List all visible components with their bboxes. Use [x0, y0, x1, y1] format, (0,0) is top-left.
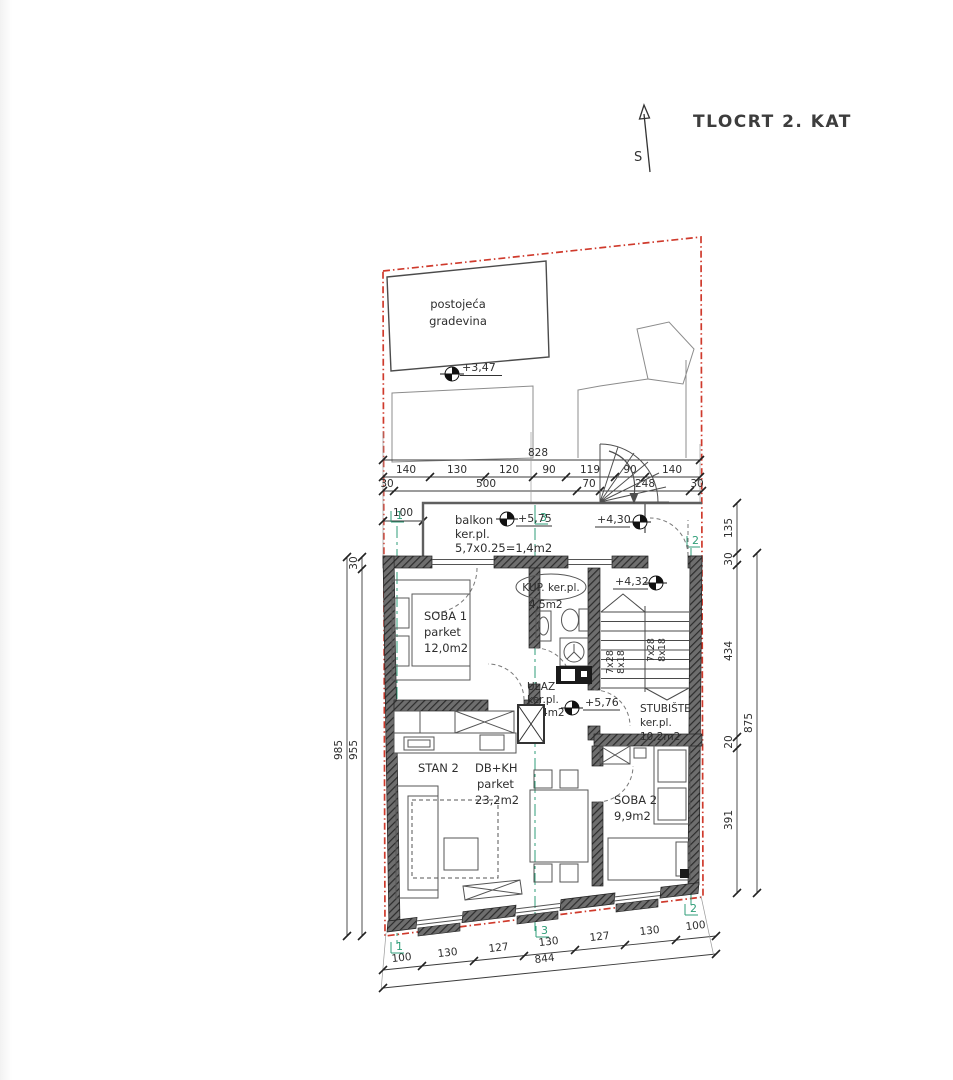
- dim-top: 70: [582, 478, 595, 490]
- stan2-label-1: STAN 2: [418, 761, 459, 775]
- dim-right: 30: [723, 552, 735, 565]
- elevation-marker-icon: [496, 512, 518, 526]
- dim-bottom: 127: [488, 941, 509, 955]
- stair-run-label: 7x28: [646, 638, 657, 662]
- dim-top: 130: [447, 464, 467, 476]
- dim-top: 90: [542, 464, 555, 476]
- balcony-label-1: balkon: [455, 513, 493, 527]
- elevation-marker-icon: [629, 515, 651, 529]
- dim-left: 955: [348, 740, 360, 760]
- dim-top: 140: [662, 464, 682, 476]
- dim-left-total: 985: [333, 740, 345, 760]
- dimensions-top: 828 140 130 120 90 119 90 140 30 500 70 …: [379, 432, 706, 556]
- dining-set: [530, 770, 588, 882]
- dim-bottom: 100: [685, 919, 706, 933]
- stairwell: 7x28 8x18 7x28 8x18 +4,32 STUBIŠTE ker.p…: [601, 575, 691, 743]
- stove: [480, 735, 504, 750]
- chair: [534, 864, 552, 882]
- rug: [412, 800, 498, 878]
- shelf: [634, 748, 646, 758]
- page-title: TLOCRT 2. KAT: [693, 112, 852, 132]
- dim-right: 434: [723, 641, 735, 661]
- dim-bottom: 127: [589, 930, 610, 944]
- soba2-label-2: 9,9m2: [614, 809, 651, 823]
- dim-right: 391: [723, 810, 735, 830]
- landing-elevation: +4,30: [597, 513, 631, 526]
- kup-label-1: KUP. ker.pl.: [522, 582, 579, 594]
- chair: [560, 770, 578, 788]
- balcony: balkon ker.pl. 5,7x0.25=1,4m2 +5,75: [423, 503, 702, 556]
- wardrobe: [654, 746, 690, 824]
- soba1-label-3: 12,0m2: [424, 641, 468, 655]
- dim-left: 30: [348, 556, 360, 569]
- dim-top-total: 828: [528, 447, 548, 459]
- stair-run-label: 7x28: [605, 650, 616, 674]
- north-label: S: [634, 150, 642, 165]
- existing-building-label-1: postojeća: [430, 297, 486, 311]
- chair: [560, 864, 578, 882]
- soba2-label-1: SOBA 2: [614, 793, 657, 807]
- chair: [534, 770, 552, 788]
- existing-building-label-2: gradevina: [429, 314, 487, 328]
- dim-top: 120: [499, 464, 519, 476]
- kup-label-2: 4,5m2: [529, 599, 563, 611]
- dim-right-total: 875: [743, 713, 755, 733]
- dining-table: [530, 790, 588, 862]
- elevation-marker-icon: [440, 367, 464, 381]
- kitchen: [394, 711, 516, 753]
- entry-landing: +4,30: [595, 513, 688, 556]
- dim-bottom-total: 844: [534, 952, 556, 966]
- toilet: [562, 609, 579, 631]
- header: TLOCRT 2. KAT S: [634, 105, 852, 172]
- dim-top: 500: [476, 478, 496, 490]
- dim-bottom: 130: [437, 946, 458, 960]
- stair-run-label: 8x18: [657, 638, 668, 662]
- section-marker-2b: 2: [690, 902, 697, 915]
- ulaz-elevation: +5,76: [585, 696, 619, 709]
- soba1-label-2: parket: [424, 625, 461, 639]
- section-marker-3b: 3: [541, 924, 548, 937]
- dimensions-left: 30 955 985: [333, 553, 366, 940]
- stubiste-label-2: ker.pl.: [640, 717, 672, 729]
- soba1-label-1: SOBA 1: [424, 609, 467, 623]
- dim-top: 140: [396, 464, 416, 476]
- toilet-tank: [579, 609, 589, 631]
- stubiste-label-3: 10,2m2: [640, 731, 680, 743]
- dim-top: 30: [380, 478, 393, 490]
- bed-soba2: [608, 838, 690, 880]
- room-soba2: SOBA 2 9,9m2: [600, 746, 690, 880]
- dim-top: 119: [580, 464, 600, 476]
- room-soba1: SOBA 1 parket 12,0m2: [392, 580, 470, 680]
- dim-right: 135: [723, 518, 735, 538]
- room-kup: KUP. ker.pl. 4,5m2: [516, 574, 592, 684]
- dimensions-bottom: 100 130 127 130 127 130 100 844: [379, 896, 720, 992]
- dim-top: 30: [690, 478, 703, 490]
- ulaz-label-1: ULAZ: [527, 681, 555, 693]
- stair-landing-elevation: +4,32: [615, 575, 649, 588]
- dim-bottom: 130: [639, 924, 660, 938]
- existing-building: postojeća gradevina: [387, 261, 549, 371]
- fridge: [394, 711, 420, 733]
- dimensions-right: 135 30 434 20 391 875: [723, 499, 761, 897]
- tv-bench: [463, 880, 522, 900]
- coffee-table: [444, 838, 478, 870]
- balcony-label-3: 5,7x0.25=1,4m2: [455, 541, 552, 555]
- stubiste-label-1: STUBIŠTE: [640, 702, 691, 715]
- floorplan-page: TLOCRT 2. KAT S postojeća gradevina +3,4…: [0, 0, 953, 1080]
- stan2-label-3: parket: [477, 777, 514, 791]
- stan2-label-2: DB+KH: [475, 761, 518, 775]
- section-marker-2: 2: [692, 534, 699, 547]
- stair-run-label: 8x18: [616, 650, 627, 674]
- balcony-elevation: +5,75: [518, 512, 552, 525]
- dim-right: 20: [723, 735, 735, 748]
- floorplan-drawing: TLOCRT 2. KAT S postojeća gradevina +3,4…: [0, 0, 953, 1080]
- section-marker-1: 1: [396, 509, 403, 522]
- north-arrow-icon: S: [634, 105, 650, 172]
- balcony-label-2: ker.pl.: [455, 527, 490, 541]
- section-marker-1b: 1: [396, 940, 403, 953]
- room-stan2: STAN 2 DB+KH parket 23,2m2: [394, 705, 588, 900]
- section-lines: [391, 505, 700, 953]
- elevation-existing-value: +3,47: [462, 361, 496, 374]
